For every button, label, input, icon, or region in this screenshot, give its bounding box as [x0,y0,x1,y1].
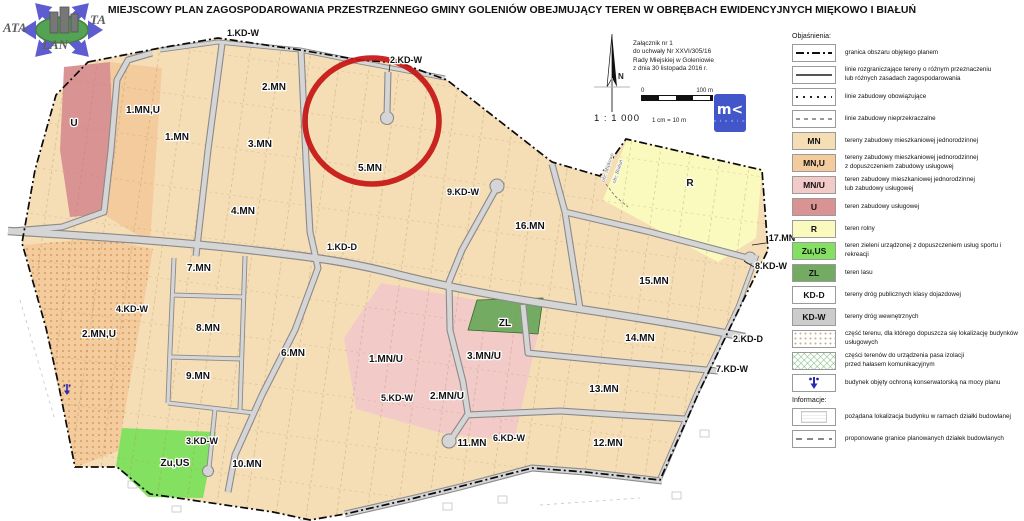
legend-swatch-oblig [792,88,836,106]
map-label-7MN: 7.MN [187,263,211,274]
legend-item: pożądana lokalizacja budynku w ramach dz… [792,408,1022,426]
map-label-2MN: 2.MN [262,82,286,93]
legend-label: części terenów do urządzenia pasa izolac… [845,352,964,370]
map-label-2KDD: 2.KD-D [733,334,764,344]
legend-panel: Objaśnienia: granica obszaru objętego pl… [792,33,1022,452]
annex-line: do uchwały Nr XXVI/305/16 [633,48,714,56]
north-arrow [592,32,632,117]
map-label-4KDW: 4.KD-W [116,304,149,314]
map-label-U: U [70,118,77,129]
legend-item: MN,Utereny zabudowy mieszkaniowej jednor… [792,154,1022,172]
annex-note: Załącznik nr 1 do uchwały Nr XXVI/305/16… [633,40,714,73]
map-label-13MN: 13.MN [589,384,618,395]
legend-swatch-dots [792,330,836,348]
legend-label: teren rolny [845,225,875,234]
watermark-text-lan: LAN [42,37,68,53]
legend-swatch-nieprz [792,110,836,128]
legend-swatch-MN: MN [792,132,836,150]
map-label-3MN: 3.MN [248,139,272,150]
legend-swatch-monument [792,374,836,392]
legend-label: teren lasu [845,269,873,278]
map-label-11MN: 11.MN [458,438,487,449]
legend-item: KD-Dtereny dróg publicznych klasy dojazd… [792,286,1022,304]
map-label-2MNU: 2.MN,U [82,329,116,340]
scale-bar: 0 100 m [641,88,713,101]
legend-item: ZLteren lasu [792,264,1022,282]
legend-swatch-desired [792,408,836,426]
legend-label: linie zabudowy obowiązujące [845,93,926,102]
scale-end: 100 m [696,88,713,94]
map-label-9MN: 9.MN [186,371,210,382]
legend-label: linie zabudowy nieprzekraczalne [845,115,936,124]
legend-label: linie rozgraniczające tereny o różnym pr… [845,66,991,84]
legend-header: Objaśnienia: [792,33,1022,40]
legend-item: linie zabudowy nieprzekraczalne [792,110,1022,128]
legend-label: część terenu, dla którego dopuszcza się … [845,330,1022,348]
map-label-5MN: 5.MN [358,163,382,174]
map-label-8KDW: 8.KD-W [755,261,788,271]
annex-line: Załącznik nr 1 [633,40,714,48]
plan-sheet: MIEJSCOWY PLAN ZAGOSPODAROWANIA PRZESTRZ… [0,0,1024,521]
scale-ratio: 1 : 1 000 [594,113,640,124]
legend-swatch-sepline [792,66,836,84]
legend-item: Uteren zabudowy usługowej [792,198,1022,216]
legend-item: granica obszaru objętego planem [792,44,1022,62]
map-label-2MNU: 2.MN/U [430,391,464,402]
map-label-3KDW: 3.KD-W [186,436,219,446]
legend-swatch-KD-W: KD-W [792,308,836,326]
map-label-1MNU: 1.MN/U [369,354,403,365]
annex-line: z dnia 30 listopada 2016 r. [633,65,714,73]
legend-label: budynek objęty ochroną konserwatorską na… [845,379,1000,388]
legend-label: tereny zabudowy mieszkaniowej jednorodzi… [845,154,978,172]
legend-label: tereny zabudowy mieszkaniowej jednorodzi… [845,137,978,146]
legend-info-header: Informacje: [792,397,1022,404]
legend-label: teren zabudowy usługowej [845,203,919,212]
legend-item: MN/Uteren zabudowy mieszkaniowej jednoro… [792,176,1022,194]
legend-label: tereny dróg publicznych klasy dojazdowej [845,291,961,300]
legend-item: proponowane granice planowanych działek … [792,430,1022,448]
legend-swatch-U: U [792,198,836,216]
north-label: N [618,72,624,81]
map-label-2KDW: 2.KD-W [390,55,423,65]
legend-item: Rteren rolny [792,220,1022,238]
legend-item: część terenu, dla którego dopuszcza się … [792,330,1022,348]
legend-label: tereny dróg wewnętrznych [845,313,919,322]
map-label-1KDW: 1.KD-W [227,28,260,38]
legend-item: Zu,USteren zieleni urządzonej z dopuszcz… [792,242,1022,260]
legend-item: linie zabudowy obowiązujące [792,88,1022,106]
legend-swatch-MN/U: MN/U [792,176,836,194]
map-label-15MN: 15.MN [639,276,668,287]
legend-info-items: pożądana lokalizacja budynku w ramach dz… [792,408,1022,448]
legend-item: linie rozgraniczające tereny o różnym pr… [792,66,1022,84]
map-label-10MN: 10.MN [232,459,261,470]
watermark-text-ta: TA [90,12,106,28]
legend-label: teren zabudowy mieszkaniowej jednorodzin… [845,176,975,194]
mk-logo-sub: s t u d i o [714,119,746,123]
legend-label: proponowane granice planowanych działek … [845,435,1004,444]
legend-swatch-boundary [792,44,836,62]
map-label-1MN: 1.MN [165,132,189,143]
legend-items: granica obszaru objętego planemlinie roz… [792,44,1022,392]
legend-item: budynek objęty ochroną konserwatorską na… [792,374,1022,392]
map-label-14MN: 14.MN [625,333,654,344]
legend-swatch-proposed [792,430,836,448]
legend-swatch-MN,U: MN,U [792,154,836,172]
map-label-R: R [686,178,694,189]
legend-swatch-ZL: ZL [792,264,836,282]
map-label-9KDW: 9.KD-W [447,187,480,197]
map-label-3MNU: 3.MN/U [467,351,501,362]
annex-line: Rady Miejskiej w Goleniowie [633,57,714,65]
scale-start: 0 [641,88,644,94]
legend-item: KD-Wtereny dróg wewnętrznych [792,308,1022,326]
map-label-1KDD: 1.KD-D [327,242,358,252]
map-label-6MN: 6.MN [281,348,305,359]
map-label-4MN: 4.MN [231,206,255,217]
map-label-6KDW: 6.KD-W [493,433,526,443]
map-label-8MN: 8.MN [196,323,220,334]
watermark-text-ata: ATA [3,20,27,36]
map-label-12MN: 12.MN [593,438,622,449]
mk-logo-glyph: m< [717,103,743,117]
legend-swatch-KD-D: KD-D [792,286,836,304]
atalan-watermark: ATA TA LAN [0,0,150,80]
map-label-16MN: 16.MN [515,221,544,232]
map-label-ZL: ZL [499,318,511,329]
map-label-5KDW: 5.KD-W [381,393,414,403]
legend-item: MNtereny zabudowy mieszkaniowej jednorod… [792,132,1022,150]
map-label-1MNU: 1.MN,U [126,105,160,116]
mk-studio-logo: m< s t u d i o [714,94,746,132]
legend-swatch-hatch [792,352,836,370]
legend-swatch-R: R [792,220,836,238]
map-label-ZuUS: Zu,US [161,458,190,469]
legend-label: granica obszaru objętego planem [845,49,938,58]
legend-swatch-Zu,US: Zu,US [792,242,836,260]
legend-item: części terenów do urządzenia pasa izolac… [792,352,1022,370]
legend-label: teren zieleni urządzonej z dopuszczeniem… [845,242,1022,260]
legend-label: pożądana lokalizacja budynku w ramach dz… [845,413,1011,422]
scale-equivalence: 1 cm = 10 m [652,117,686,124]
map-label-7KDW: 7.KD-W [716,364,749,374]
scale-bar-graphic [641,95,713,101]
buildings-icon [50,7,78,33]
